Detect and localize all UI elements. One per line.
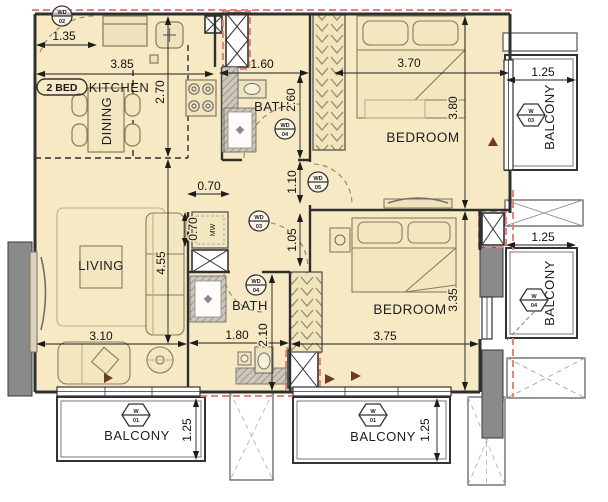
dim-closet-depth: 0.70: [186, 217, 200, 241]
dim-balcony-tr-width: 1.25: [531, 65, 555, 79]
room-label-balcony-bl: BALCONY: [104, 428, 170, 443]
floor-plan-page: MW: [0, 0, 608, 502]
room-label-bedroom-bottom: BEDROOM: [373, 302, 446, 317]
door-tag-bath-top-num: 04: [282, 132, 289, 138]
door-tag-bedroom-top-code: WD: [313, 176, 322, 182]
door-tag-bedroom-top: WD 05: [308, 172, 328, 192]
tv-console: [384, 198, 452, 208]
dim-bedroom-top-width: 3.70: [397, 56, 421, 70]
bath-sink-icon: [238, 80, 266, 98]
dim-bedroom-bottom-depth: 3.35: [446, 288, 460, 312]
dim-entry-width: 1.35: [52, 29, 76, 43]
dim-bath-top-width: 1.60: [250, 57, 274, 71]
dim-closet-width: 0.70: [197, 179, 221, 193]
dim-hall-upper: 1.10: [285, 170, 299, 194]
window-tag-balcony-mr: W 04: [520, 289, 548, 311]
stove-icon: [186, 80, 216, 116]
dining-chair: [125, 94, 140, 116]
dim-balcony-bc-depth: 1.25: [418, 418, 432, 442]
door-tag-bath-bottom-code: WD: [251, 279, 260, 285]
nightstand: [330, 228, 350, 252]
dining-chair: [72, 124, 87, 146]
door-tag-hall-code: WD: [254, 215, 263, 221]
kitchen-sink-icon: [156, 22, 183, 48]
mw-label: MW: [210, 223, 217, 236]
dim-kitchen-width: 3.85: [110, 57, 134, 71]
room-label-bath-bottom: BATH: [232, 298, 268, 313]
dim-bedroom-top-depth: 3.80: [446, 96, 460, 120]
door-tag-hall: WD 03: [249, 211, 269, 231]
door-tag-bath-top-code: WD: [280, 123, 289, 129]
dim-bedroom-bottom-width: 3.75: [373, 329, 397, 343]
room-label-bedroom-top: BEDROOM: [386, 130, 459, 145]
window-tag-mr-num: 04: [531, 303, 538, 309]
window-tag-tr-num: 03: [528, 118, 534, 124]
door-tag-hall-num: 03: [256, 224, 262, 230]
dining-chair: [125, 124, 140, 146]
pillow: [408, 222, 450, 243]
dim-living-depth: 4.55: [154, 251, 168, 275]
chaise-lounge: [58, 342, 130, 384]
room-label-living: LIVING: [78, 258, 124, 273]
shower-icon: [224, 108, 256, 152]
bed: [352, 218, 456, 292]
bath-sink-icon: [238, 352, 251, 365]
door-tag-entry: WD 02: [52, 6, 72, 26]
pillow: [358, 222, 402, 243]
room-label-dining: DINING: [99, 97, 114, 146]
window-tag-mr-code: W: [531, 294, 537, 300]
window-tag-bc-code: W: [370, 409, 376, 415]
window-tag-bl-num: 01: [133, 418, 139, 424]
window-tag-bl-code: W: [133, 409, 139, 415]
door-tag-entry-num: 02: [59, 19, 65, 25]
dining-chair: [72, 94, 87, 116]
door-tag-bedroom-top-num: 05: [315, 185, 321, 191]
room-label-kitchen: KITCHEN: [89, 80, 150, 95]
shower-icon: [190, 276, 226, 322]
pillow: [363, 21, 408, 45]
door-tag-entry-code: WD: [57, 10, 66, 16]
dim-balcony-bl-depth: 1.25: [180, 418, 194, 442]
dim-living-width: 3.10: [89, 329, 113, 343]
wardrobe-bedroom-bottom: [290, 272, 322, 352]
toilet-icon: [255, 347, 273, 373]
window-tag-balcony-bl: W 01: [122, 404, 150, 426]
side-table: [147, 347, 173, 373]
window-tag-balcony-tr: W 03: [517, 104, 545, 126]
door-tag-bath-bottom: WD 04: [246, 275, 266, 295]
room-label-balcony-bc: BALCONY: [350, 429, 416, 444]
dim-balcony-mr-width: 1.25: [531, 230, 555, 244]
pillow: [413, 21, 458, 45]
dim-kitchen-depth: 2.70: [153, 80, 167, 104]
dim-hall-lower: 1.05: [285, 228, 299, 252]
dim-bath-top-depth: 2.60: [284, 88, 298, 112]
fridge-icon: [103, 16, 147, 46]
door-tag-bath-bottom-num: 04: [253, 288, 260, 294]
window-tag-bc-num: 01: [370, 418, 376, 424]
dim-bath-bottom-depth: 2.10: [256, 323, 270, 347]
window-tag-balcony-bc: W 01: [359, 404, 387, 426]
floor-plan: MW: [0, 0, 608, 502]
wardrobe-bedroom-top: [313, 15, 345, 150]
counter-outlet: [150, 55, 158, 63]
dim-bath-bottom-width: 1.80: [225, 328, 249, 342]
door-tag-bath-top: WD 04: [275, 119, 295, 139]
unit-type-label: 2 BED: [47, 82, 78, 94]
window-tag-tr-code: W: [528, 109, 534, 115]
